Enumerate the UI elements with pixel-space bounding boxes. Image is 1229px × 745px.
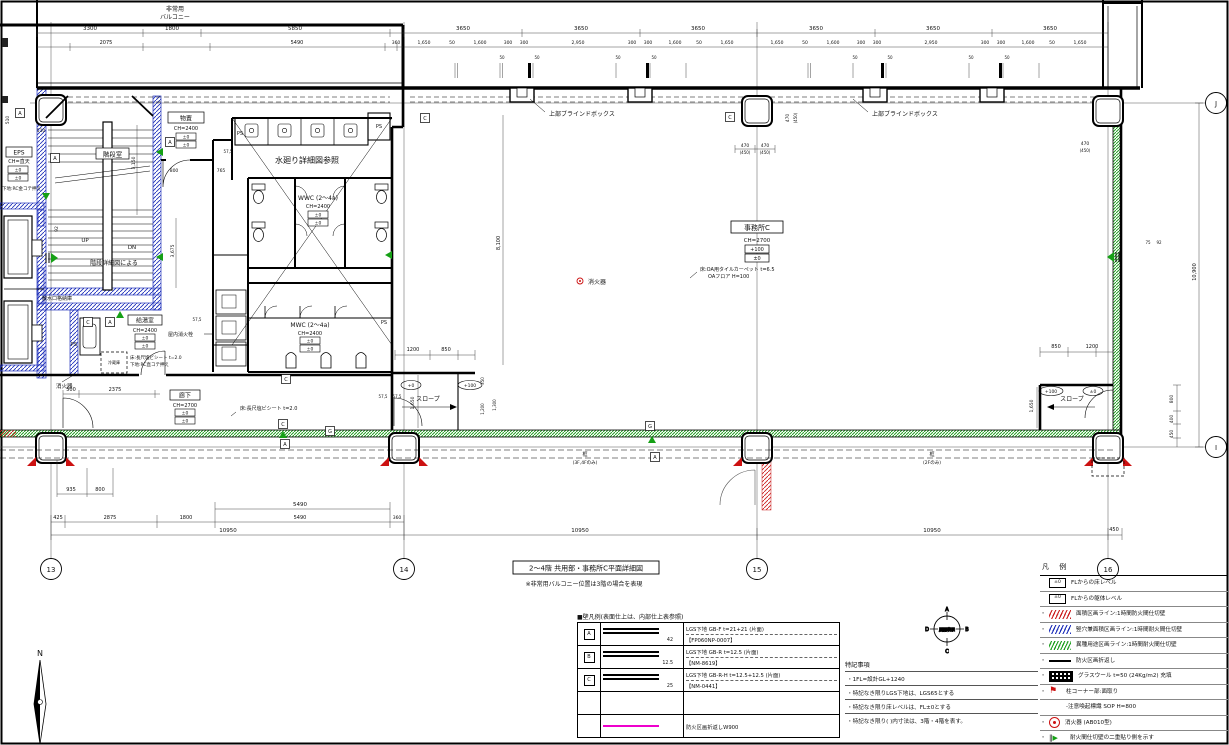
dim: 5490 <box>294 515 307 521</box>
dim: 1,600 <box>474 40 487 46</box>
dim: 360 <box>393 515 402 521</box>
kitchenette-note: 床:長尺塩ビシート t=2.0 <box>130 354 182 361</box>
column <box>36 433 66 463</box>
tag-a: A <box>108 320 112 326</box>
level-tag: ±0 <box>307 347 314 353</box>
column <box>742 96 772 126</box>
dim: 3650 <box>691 26 705 32</box>
dim: 3,150 <box>131 156 137 169</box>
dim: 360 <box>392 40 401 46</box>
eps-label: EPS <box>13 150 24 157</box>
red-hatch-icon <box>1049 610 1071 619</box>
dim: 3650 <box>456 26 470 32</box>
toilet-core <box>216 113 392 368</box>
bullet: ・ <box>1040 735 1046 741</box>
wall-symbol: 12.5 <box>603 651 659 664</box>
refrigerator-label: 冷蔵庫 <box>108 359 120 365</box>
dim: 50 <box>615 55 621 60</box>
dim: 2,950 <box>925 40 938 46</box>
level-oval: +100 <box>464 383 476 389</box>
drawing-title: 2〜4階 共用部・事務所C平面詳細図 ※非常用バルコニー位置は3階の場合を表現 <box>513 561 659 588</box>
level-tag: ±0 <box>15 176 22 182</box>
dim: 1200 <box>1086 344 1099 350</box>
compartment-hatch-walls <box>0 88 1121 510</box>
dim: (450) <box>793 112 798 123</box>
dim: 1,650 <box>771 40 784 46</box>
storage-ch: CH=2400 <box>174 126 198 132</box>
dim: 470 <box>761 143 770 149</box>
dimension-joint-marks <box>528 63 1002 78</box>
dim: 1800 <box>165 26 179 32</box>
green-compartment-band-bottom <box>0 430 1121 437</box>
dim: 3650 <box>574 26 588 32</box>
dim: 300 <box>873 40 882 46</box>
dim: 50 <box>1049 40 1055 46</box>
level-tag: ±0 <box>183 143 190 149</box>
dim: (450) <box>1080 148 1091 153</box>
dim: 1,650 <box>410 396 416 409</box>
office-note: 床:OA用タイルカーペット t=6.5 <box>700 266 775 273</box>
legend-label: 耐火間仕切壁の二重貼り側を示す <box>1070 735 1154 741</box>
corner-flag-icon: ⚑ <box>1049 687 1061 696</box>
mwc-label: MWC (2〜4a) <box>290 322 329 329</box>
legend-row: ・ グラスウール t=50 (24Kg/m2) 充填 <box>1040 669 1228 685</box>
dim: 3300 <box>83 26 97 32</box>
dim: 450 <box>1109 527 1119 533</box>
column <box>36 95 66 125</box>
bullet: ・ <box>1040 611 1046 617</box>
kitchenette-note: 下地:RC直コテ押え <box>130 361 170 368</box>
kamachi-note: (2Fのみ) <box>923 460 941 466</box>
legend-label: -注意喚起標識 SOP H=800 <box>1066 704 1136 710</box>
legend-header: 凡 例 <box>1040 560 1228 576</box>
balcony-label: バルコニー <box>160 14 190 21</box>
note-item: ・1FL=設計GL+1240 <box>845 671 1038 685</box>
dim: 50 <box>696 40 702 46</box>
dim: 3650 <box>926 26 940 32</box>
level-tag: ±0 <box>182 411 189 417</box>
dim: 1,600 <box>669 40 682 46</box>
wall-spec: 【FP060NP-0007】 <box>686 635 837 644</box>
special-notes-panel: 特記事項 ・1FL=設計GL+1240 ・特記なき限りLGS下地は、LGS65と… <box>845 660 1038 727</box>
dim: 510 <box>5 116 11 125</box>
eps-note: 下地:RC金コテ押え <box>2 185 42 192</box>
stair-label: 階段室 <box>103 150 123 159</box>
dim: 2,950 <box>572 40 585 46</box>
level-tag: ±0 <box>142 344 149 350</box>
wall-symbol: 42 <box>603 628 659 641</box>
sink <box>83 324 96 348</box>
indoor-hydrant-label: 屋内消火栓 <box>168 331 193 338</box>
tag-a: A <box>53 156 57 162</box>
dim: 935 <box>66 487 76 493</box>
legend-label: 防火区画折返し <box>1076 658 1115 664</box>
blind-box-label: 上部ブラインドボックス <box>549 110 615 118</box>
notes-header: 特記事項 <box>845 660 1038 671</box>
legend-label: グラスウール t=50 (24Kg/m2) 充填 <box>1078 673 1172 679</box>
legend-row: ±0 FLからの躯体レベル <box>1040 592 1228 608</box>
tag-c: C <box>86 320 90 326</box>
legend-row: ±0 FLからの床レベル <box>1040 576 1228 592</box>
dim: 350 <box>480 377 485 385</box>
wall-markers <box>42 148 1119 443</box>
level-tag: ±0 <box>315 221 322 227</box>
wall-desc: LGS下地 GB-F t=21+21 (片面) <box>686 625 837 635</box>
wall-spec: 【NM-8619】 <box>686 658 837 667</box>
legend-row: ・⚑ 柱コーナー部:面取り <box>1040 685 1228 701</box>
dim: 450 <box>1169 430 1175 439</box>
wall-legend-panel: ■壁凡例(表面仕上は、内部仕上表参照) A 42 LGS下地 GB-F t=21… <box>577 612 840 738</box>
dim: 470 <box>741 143 750 149</box>
ps-label: PS <box>237 131 243 137</box>
dim: 5850 <box>288 26 302 32</box>
kamachi-label: 框 <box>582 451 587 458</box>
dim: 3650 <box>1043 26 1057 32</box>
dim: 5490 <box>291 40 304 46</box>
foldback-line-icon <box>1049 660 1071 662</box>
dim: 800 <box>1169 395 1175 404</box>
ps-label: PS <box>376 124 382 130</box>
legend-label: 異種用途区画ライン:1時間耐火間仕切壁 <box>1076 642 1177 648</box>
dim: 50 <box>1004 55 1010 60</box>
level-tag: ±0 <box>315 213 322 219</box>
dim: 50 <box>802 40 808 46</box>
column <box>1093 433 1123 463</box>
office-note: OAフロア H=100 <box>708 274 749 280</box>
glasswool-icon <box>1049 671 1073 682</box>
tag-a: A <box>168 140 172 146</box>
sprinkler-box-label: 散水口格納庫 <box>42 295 72 302</box>
dim: 10950 <box>571 528 589 534</box>
dim: 510 <box>37 128 46 134</box>
wall-tag: B <box>584 652 595 663</box>
legend-label: FLからの床レベル <box>1071 580 1117 586</box>
level-oval: ±0 <box>1090 389 1097 395</box>
dim: 50 <box>887 55 893 60</box>
left-edge-marks <box>2 38 8 103</box>
dim: 8,100 <box>496 236 502 250</box>
dim: 57,5 <box>379 394 388 399</box>
blind-box-label: 上部ブラインドボックス <box>872 110 938 118</box>
level-oval: +100 <box>1045 389 1057 395</box>
dim: 92 <box>54 226 60 232</box>
legend-label: 竪穴兼面積区画ライン:1時間耐火間仕切壁 <box>1076 627 1182 633</box>
dim: (450) <box>740 150 751 155</box>
dim: 300 <box>857 40 866 46</box>
dim: 1800 <box>180 515 193 521</box>
fire-extinguisher-label: 消火器 <box>588 278 606 286</box>
bullet: ・ <box>1040 673 1046 679</box>
kitchenette-label: 給湯室 <box>136 317 154 325</box>
dim: 425 <box>53 515 63 521</box>
wall-desc: 防火区画折返しW900 <box>686 722 837 731</box>
title-text: 2〜4階 共用部・事務所C平面詳細図 <box>529 564 643 573</box>
dim: 92 <box>1156 240 1162 245</box>
wall-legend-table: A 42 LGS下地 GB-F t=21+21 (片面)【FP060NP-000… <box>577 622 840 738</box>
corridor-ch: CH=2700 <box>173 403 197 409</box>
tag-a: A <box>18 111 22 117</box>
level-tag: ±0 <box>15 168 22 174</box>
dim: 1,650 <box>418 40 431 46</box>
tag-g: G <box>648 424 652 430</box>
wall-legend-row <box>578 692 840 715</box>
dim: 500 <box>66 387 76 393</box>
wall-symbol: 25 <box>603 674 659 687</box>
north-label: N <box>37 649 43 658</box>
level-tag: ±0 <box>307 339 314 345</box>
wall-legend-row: C 25 LGS下地 GB-R-H t=12.5+12.5 (片面)【NM-04… <box>578 669 840 692</box>
wall-legend-header: ■壁凡例(表面仕上は、内部仕上表参照) <box>577 612 840 621</box>
wall-type-tags <box>16 109 735 462</box>
dim: 1,600 <box>827 40 840 46</box>
tag-c: C <box>423 116 427 122</box>
bullet: ・ <box>1040 642 1046 648</box>
columns <box>36 95 1123 463</box>
corridor-label: 廊下 <box>179 392 191 400</box>
dim: 300 <box>504 40 513 46</box>
grid-label-15: 15 <box>753 566 762 574</box>
elevator-door <box>32 325 42 341</box>
ps-label: PS <box>71 342 77 348</box>
grid-label-J: J <box>1214 100 1217 108</box>
grid-label-13: 13 <box>47 566 56 574</box>
slope-label: スロープ <box>416 396 440 403</box>
legend-row: ・ 面積区画ライン:1時間防火間仕切壁 <box>1040 607 1228 623</box>
extinguisher-icon <box>1049 717 1060 728</box>
dim: 3650 <box>809 26 823 32</box>
corridor-note: 床:長尺塩ビシート t=2.0 <box>240 405 297 412</box>
slop-sink-units <box>216 290 246 366</box>
tag-c: C <box>728 115 732 121</box>
kitchenette-ch: CH=2400 <box>133 328 157 334</box>
dim: 300 <box>997 40 1006 46</box>
detail-reference-cross <box>232 118 392 345</box>
dim: 75 <box>1145 240 1151 245</box>
blue-hatch-icon <box>1049 625 1071 634</box>
dim: 1,200 <box>480 403 485 415</box>
legend-row: ・ 異種用途区画ライン:1時間耐火間仕切壁 <box>1040 638 1228 654</box>
tag-g: G <box>328 429 332 435</box>
legend-row: ・ 消火器 (AB010型) <box>1040 716 1228 732</box>
dim: 470 <box>1081 141 1090 147</box>
dim: 10950 <box>923 528 941 534</box>
level-tag: ±0 <box>183 135 190 141</box>
tag-c: C <box>284 377 288 383</box>
legend-row: ・ 竪穴兼面積区画ライン:1時間耐火間仕切壁 <box>1040 623 1228 639</box>
dim: (450) <box>760 150 771 155</box>
dim: 300 <box>628 40 637 46</box>
dim: 470 <box>785 114 791 123</box>
dim: 800 <box>170 168 179 174</box>
dim: 1,650 <box>1074 40 1087 46</box>
exterior-walls <box>0 0 1142 447</box>
legend-label: 面積区画ライン:1時間防火間仕切壁 <box>1076 611 1165 617</box>
red-compartment-corner <box>0 430 16 437</box>
legend-label: 消火器 (AB010型) <box>1065 720 1112 726</box>
wall-desc: LGS下地 GB-R t=12.5 (片面) <box>686 648 837 658</box>
dim: 400 <box>1169 415 1175 424</box>
note-item: ・特記なき限りLGS下地は、LGS65とする <box>845 685 1038 699</box>
wall-legend-row: B 12.5 LGS下地 GB-R t=12.5 (片面)【NM-8619】 <box>578 646 840 669</box>
legend-label: FLからの躯体レベル <box>1071 596 1122 602</box>
bullet: ・ <box>1040 658 1046 664</box>
level-body-icon: ±0 <box>1049 594 1066 604</box>
bullet: ・ <box>1040 720 1046 726</box>
plumbing-detail-ref: 水廻り詳細図参照 <box>275 155 339 165</box>
wall-spec: 【NM-0441】 <box>686 681 837 690</box>
sign-pole-icon <box>1049 703 1061 712</box>
up-label: UP <box>81 238 89 244</box>
title-note: ※非常用バルコニー位置は3階の場合を表現 <box>526 580 643 588</box>
elevator-door <box>32 240 42 256</box>
office-label: 事務所C <box>744 223 770 232</box>
dim: 800 <box>95 487 105 493</box>
legend-panel: 凡 例 ±0 FLからの床レベル ±0 FLからの躯体レベル ・ 面積区画ライン… <box>1040 560 1228 745</box>
wall-type-tag-letters: A A A A A A C C C C C G G <box>18 111 732 461</box>
elevation-a: A <box>945 607 949 613</box>
legend-label: 柱コーナー部:面取り <box>1066 689 1118 695</box>
drawing-sheet: 13 14 15 16 J I 非常用 バルコニー 上部ブラインドボックス 上部… <box>0 0 1229 745</box>
north-compass: N <box>34 649 46 744</box>
bullet: ・ <box>1040 627 1046 633</box>
tag-a: A <box>653 455 657 461</box>
dim: 300 <box>520 40 529 46</box>
level-tag: ±0 <box>753 256 760 262</box>
wall-legend-row: A 42 LGS下地 GB-F t=21+21 (片面)【FP060NP-000… <box>578 623 840 646</box>
dim: 1,300 <box>492 399 497 411</box>
dim: 1,600 <box>1022 40 1035 46</box>
grid-label-14: 14 <box>400 566 409 574</box>
urinals <box>286 353 366 369</box>
wwc-label: WWC (2〜4a) <box>298 195 338 202</box>
elevation-key-symbol: A B C D 展開表示 <box>925 607 969 655</box>
dim: 50 <box>968 55 974 60</box>
dim: 2875 <box>104 515 117 521</box>
dimension-lines <box>37 29 1203 540</box>
note-item: ・特記なき限り床レベルは、FL±0とする <box>845 699 1038 713</box>
dim: 2375 <box>109 387 122 393</box>
dim: 10,900 <box>1192 263 1198 281</box>
elevation-c: C <box>945 649 949 655</box>
legend-row: ・‖▶ 耐火間仕切壁の二重貼り側を示す <box>1040 731 1228 745</box>
dim: 50 <box>534 55 540 60</box>
legend-row: -注意喚起標識 SOP H=800 <box>1040 700 1228 716</box>
dim: 765 <box>217 168 226 174</box>
grid-label-I: I <box>1215 444 1217 452</box>
dim: 57,5 <box>224 149 233 154</box>
dim: 2075 <box>100 40 113 46</box>
room-labels: 非常用 バルコニー 上部ブラインドボックス 上部ブラインドボックス 階段室 階段… <box>2 5 1096 466</box>
ps-label: PS <box>381 320 387 326</box>
note-item: ・特記なき限り( )内寸法は、3階・4階を表す。 <box>845 713 1038 727</box>
dim: 50 <box>449 40 455 46</box>
wall-tag: C <box>584 675 595 686</box>
wwc-ch: CH=2400 <box>306 204 330 210</box>
doors <box>63 160 1113 505</box>
balcony-label: 非常用 <box>166 5 184 13</box>
firestop-foldback-symbol <box>603 725 659 728</box>
elevation-label: 展開表示 <box>939 626 955 632</box>
dim: 1,650 <box>721 40 734 46</box>
mwc-ch: CH=2400 <box>298 331 322 337</box>
kamachi-note: (3F,4Fのみ) <box>573 460 598 466</box>
dim: 1200 <box>407 347 420 353</box>
kamachi-label: 框 <box>929 451 934 458</box>
elevation-d: D <box>925 627 929 633</box>
dim: 850 <box>441 347 451 353</box>
dim: 10950 <box>219 528 237 534</box>
wall-legend-row: 防火区画折返しW900 <box>578 715 840 738</box>
tag-a: A <box>283 442 287 448</box>
grid-bubbles <box>41 93 1227 580</box>
dim: 3,675 <box>170 244 176 257</box>
dim: 50 <box>499 55 505 60</box>
dim: 300 <box>644 40 653 46</box>
dim: 850 <box>1051 344 1061 350</box>
office-ch: CH=2700 <box>744 238 771 244</box>
dim: 50 <box>852 55 858 60</box>
slope-label: スロープ <box>1060 396 1084 403</box>
double-board-icon: ‖▶ <box>1049 734 1065 743</box>
wall-tag: A <box>584 629 595 640</box>
dim: 1,650 <box>1029 399 1035 412</box>
dim: 50 <box>651 55 657 60</box>
bullet: ・ <box>1040 689 1046 695</box>
dn-label: DN <box>128 245 136 251</box>
column <box>1093 96 1123 126</box>
level-tag: +100 <box>750 247 764 253</box>
eps-ch: CH=直天 <box>8 158 29 165</box>
tag-c: C <box>281 422 285 428</box>
dim: 300 <box>981 40 990 46</box>
level-oval: +0 <box>408 383 415 389</box>
dim: 57,5 <box>193 317 202 322</box>
green-hatch-icon <box>1049 641 1071 650</box>
legend-row: ・ 防火区画折返し <box>1040 654 1228 670</box>
dim: 5490 <box>293 502 307 508</box>
level-tag: ±0 <box>182 419 189 425</box>
wall-desc <box>686 703 837 704</box>
elevation-b: B <box>965 627 969 633</box>
storage-label: 物置 <box>180 115 192 123</box>
grid-lines <box>0 22 1206 558</box>
exterior-eave-dashed <box>0 450 1113 458</box>
level-floor-icon: ±0 <box>1049 578 1066 588</box>
dim: 57,5 <box>393 394 402 399</box>
stair-note: 階段詳細図による <box>90 259 138 267</box>
column <box>389 433 419 463</box>
level-tag: ±0 <box>142 336 149 342</box>
wall-desc: LGS下地 GB-R-H t=12.5+12.5 (片面) <box>686 671 837 681</box>
column <box>742 433 772 463</box>
blind-box <box>60 88 1100 112</box>
